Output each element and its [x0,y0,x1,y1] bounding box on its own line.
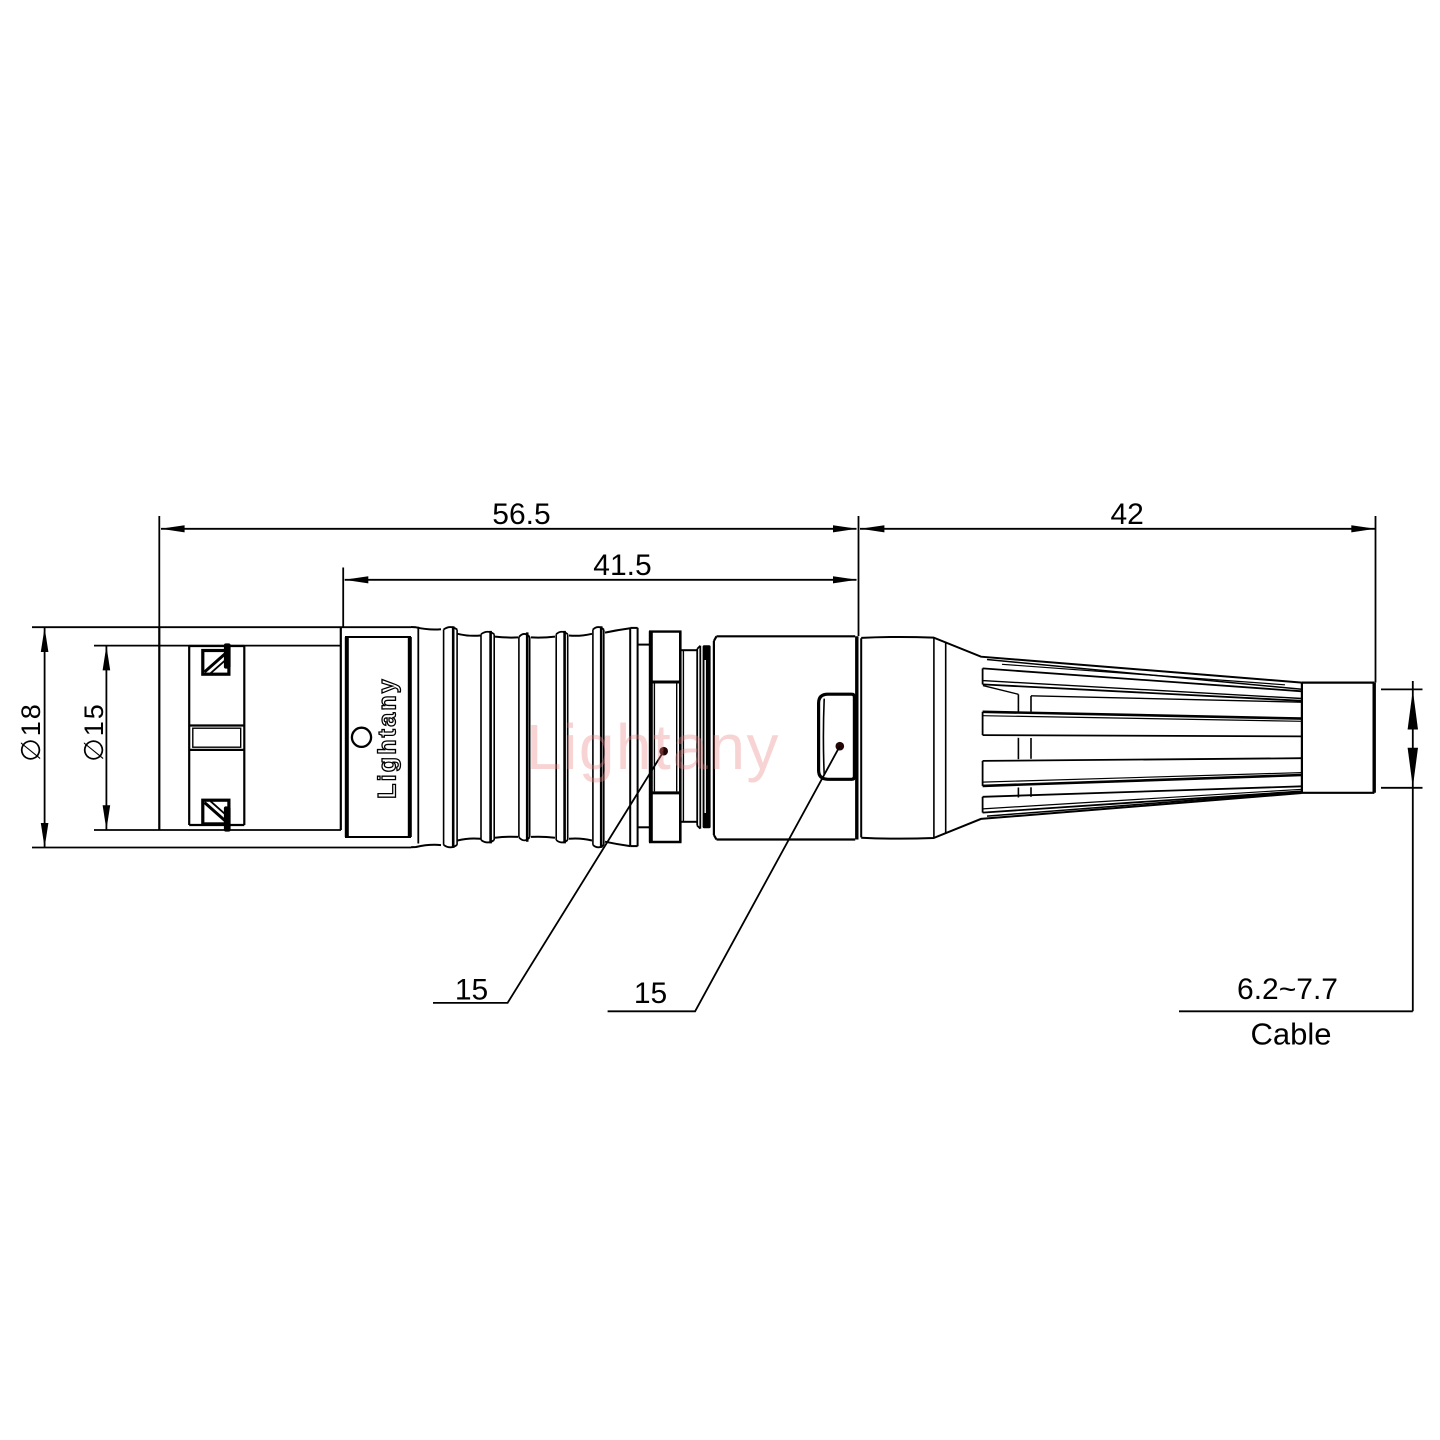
svg-text:6.2~7.7: 6.2~7.7 [1237,973,1338,1006]
svg-text:∅18: ∅18 [16,702,46,762]
svg-text:∅15: ∅15 [79,702,109,762]
svg-text:Lightany: Lightany [526,711,780,783]
svg-text:41.5: 41.5 [593,549,651,582]
svg-text:15: 15 [455,973,488,1006]
svg-text:42: 42 [1111,498,1144,531]
svg-text:56.5: 56.5 [492,498,550,531]
svg-text:15: 15 [634,977,667,1010]
svg-text:Lightany: Lightany [374,677,402,799]
svg-text:Cable: Cable [1251,1017,1332,1052]
